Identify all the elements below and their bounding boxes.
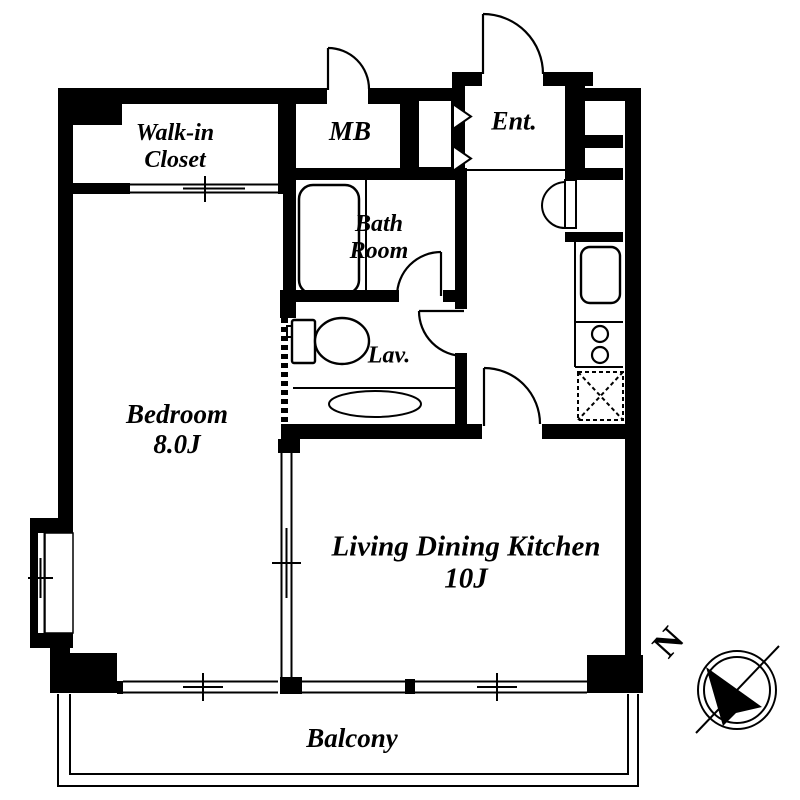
bathroom-label: Bath Room — [350, 211, 409, 265]
bedroom-ldk-sliding-door — [272, 450, 301, 677]
floor-plan: Walk-in Closet MB Ent. Bath Room Lav. Be… — [0, 0, 800, 800]
shoe-cabinet — [418, 100, 452, 168]
vanity-basin — [293, 388, 455, 417]
door-arc — [328, 48, 369, 89]
door-arc — [484, 368, 540, 424]
ldk-label: Living Dining Kitchen 10J — [331, 531, 600, 596]
lavatory-label: Lav. — [368, 343, 410, 370]
stove-burners — [592, 326, 608, 363]
toilet — [287, 318, 369, 364]
door-arc — [483, 14, 543, 74]
bifold-door — [542, 180, 576, 228]
refrigerator-space — [578, 372, 623, 420]
walls — [30, 72, 643, 694]
floor-plan-linework — [0, 0, 800, 800]
entrance-door — [483, 14, 543, 74]
kitchen-sink — [581, 247, 620, 303]
compass-needle — [706, 667, 762, 726]
entrance-label: Ent. — [491, 106, 537, 135]
bedroom-south-window — [123, 673, 278, 701]
walk-in-closet-label: Walk-in Closet — [136, 120, 214, 174]
closet-sliding-door — [130, 176, 278, 202]
ldk-south-window — [302, 673, 587, 701]
compass-icon — [696, 646, 779, 733]
meter-box-label: MB — [329, 116, 371, 146]
balcony-label: Balcony — [306, 723, 398, 753]
meter-box-door — [328, 48, 369, 90]
bedroom-label: Bedroom 8.0J — [126, 399, 228, 459]
ldk-door — [484, 368, 540, 426]
